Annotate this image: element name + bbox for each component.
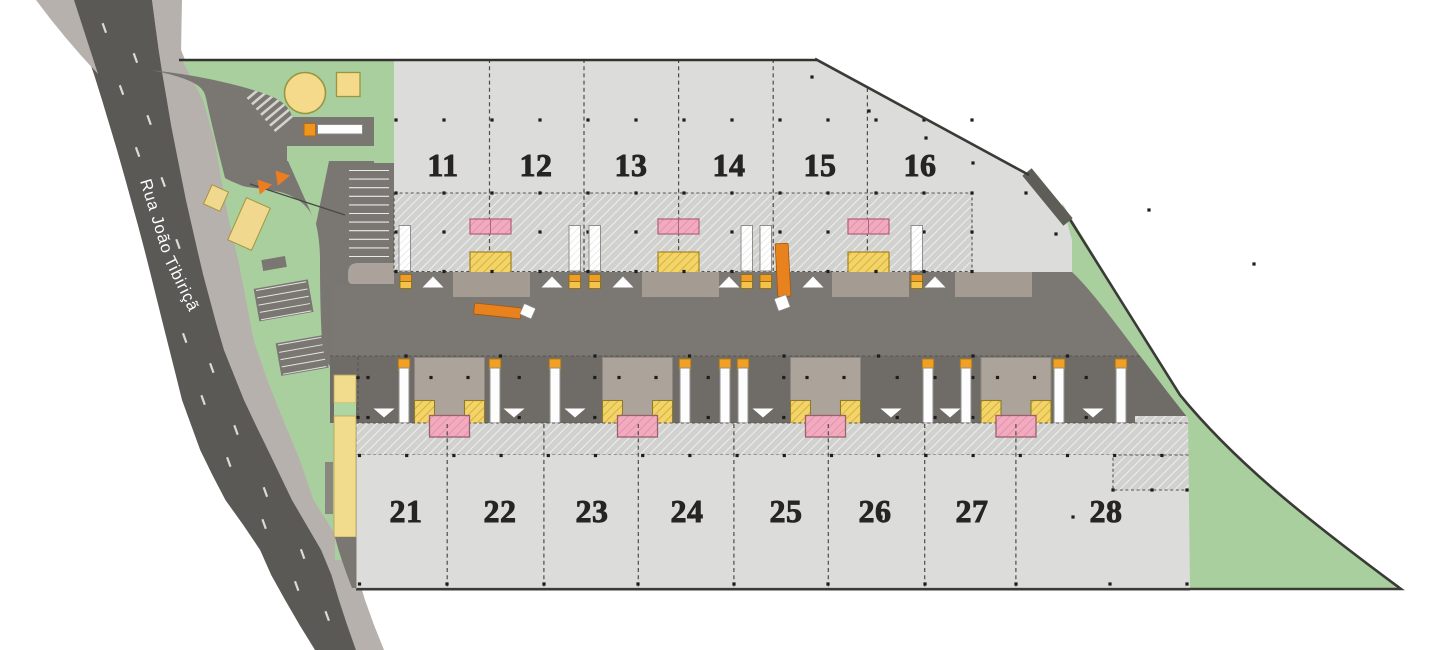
svg-text:14: 14: [713, 147, 746, 183]
svg-text:15: 15: [804, 147, 837, 183]
svg-text:21: 21: [390, 493, 423, 529]
svg-text:12: 12: [520, 147, 553, 183]
svg-text:28: 28: [1090, 493, 1123, 529]
svg-text:16: 16: [904, 147, 937, 183]
svg-text:23: 23: [576, 493, 609, 529]
svg-text:24: 24: [671, 493, 704, 529]
svg-text:22: 22: [484, 493, 517, 529]
svg-text:11: 11: [427, 147, 458, 183]
svg-text:27: 27: [956, 493, 989, 529]
svg-text:26: 26: [859, 493, 892, 529]
svg-text:13: 13: [615, 147, 648, 183]
svg-text:25: 25: [770, 493, 803, 529]
